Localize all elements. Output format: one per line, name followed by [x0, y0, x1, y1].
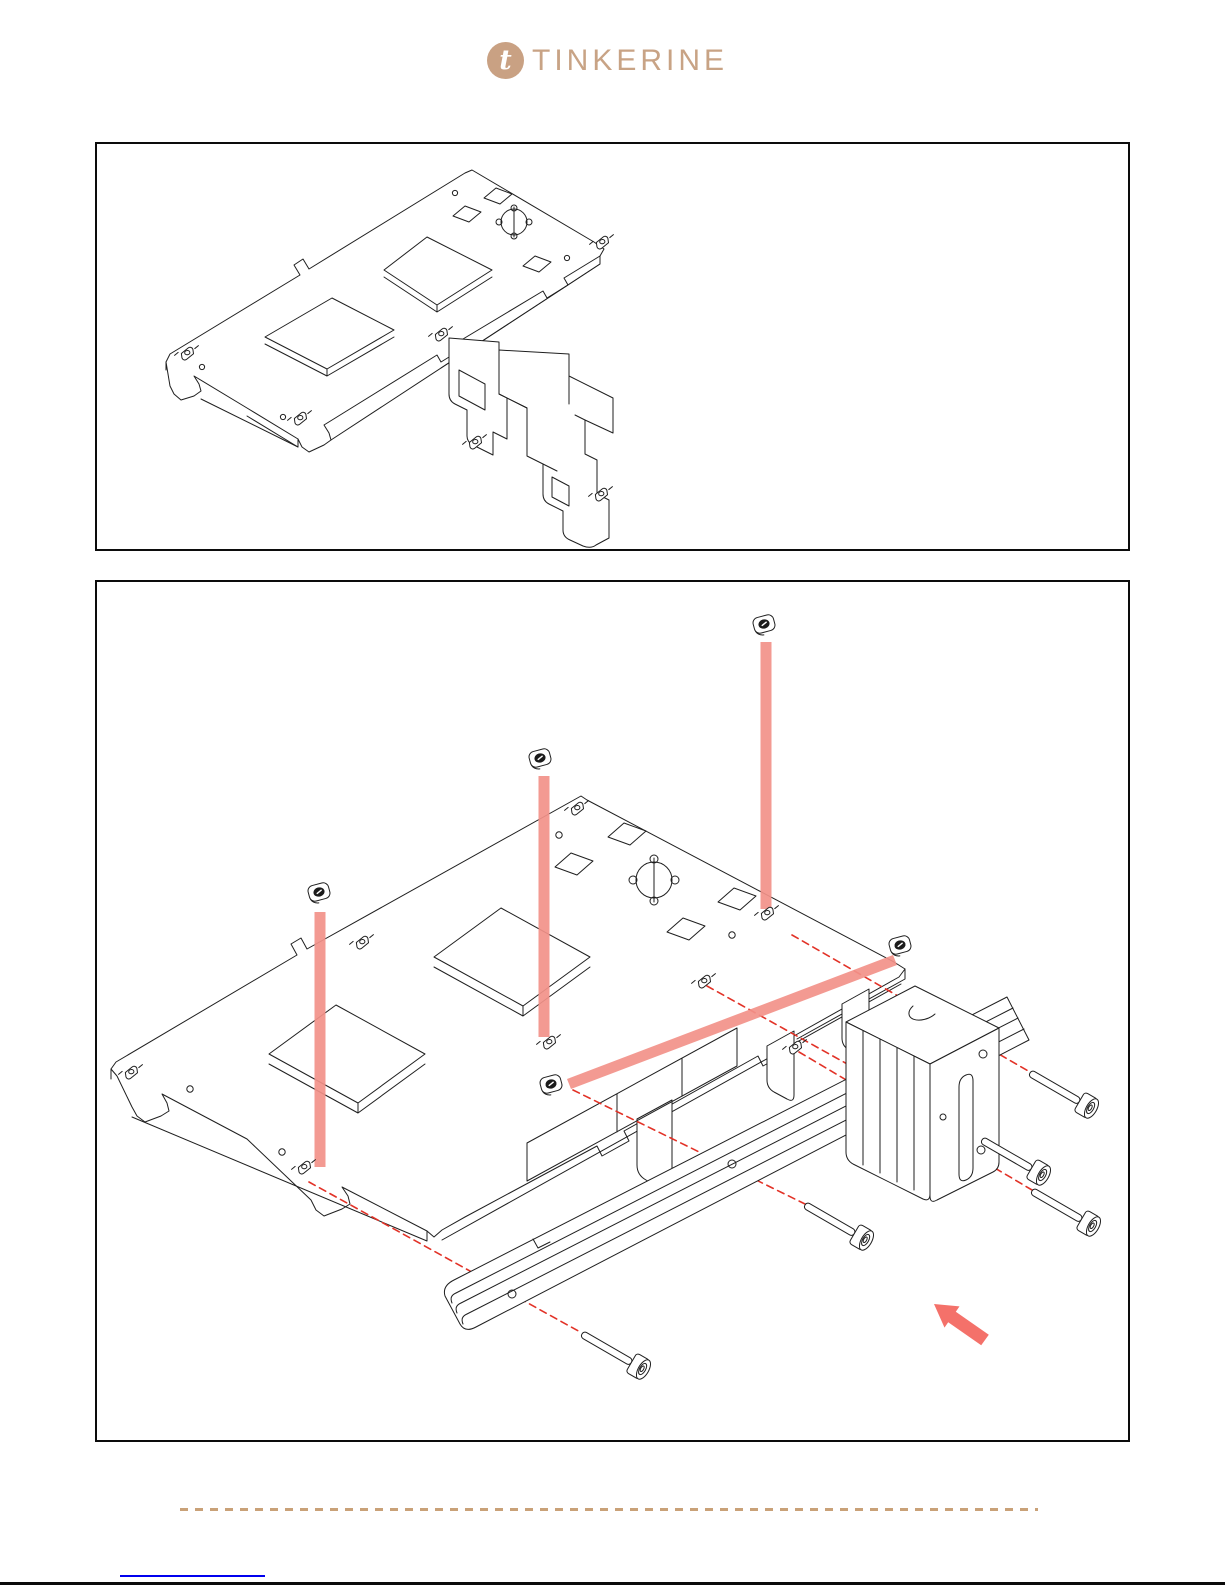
- socket-screw-icon: [1025, 1063, 1102, 1120]
- exploded-assembly-drawing: [97, 582, 1128, 1440]
- socket-screw-icon: [800, 1195, 877, 1252]
- square-nut-icon: [307, 882, 331, 905]
- socket-screw-icon: [577, 1324, 654, 1381]
- socket-screw-icon: [1027, 1181, 1104, 1238]
- footer-link[interactable]: [120, 1575, 265, 1577]
- square-nut-icon: [528, 748, 552, 771]
- tinkerine-logo-icon: t: [487, 42, 524, 79]
- gantry-plate-drawing: [111, 796, 905, 1241]
- figure-step-preview: [95, 142, 1130, 551]
- plate-with-bracket-drawing: [97, 144, 1128, 549]
- logo-glyph: t: [499, 47, 511, 74]
- manual-page: t TINKERINE: [0, 0, 1225, 1585]
- logo-wordmark: TINKERINE: [532, 44, 728, 78]
- square-nut-icon: [752, 614, 776, 637]
- z-bracket-drawing: [449, 338, 614, 547]
- direction-arrow-icon: [934, 1304, 989, 1345]
- dashed-divider: [180, 1508, 1038, 1511]
- figure-step-exploded: [95, 580, 1130, 1442]
- tinkerine-logo: t TINKERINE: [487, 42, 728, 79]
- square-nut-icon: [888, 935, 912, 958]
- motor-block-drawing: [846, 986, 999, 1201]
